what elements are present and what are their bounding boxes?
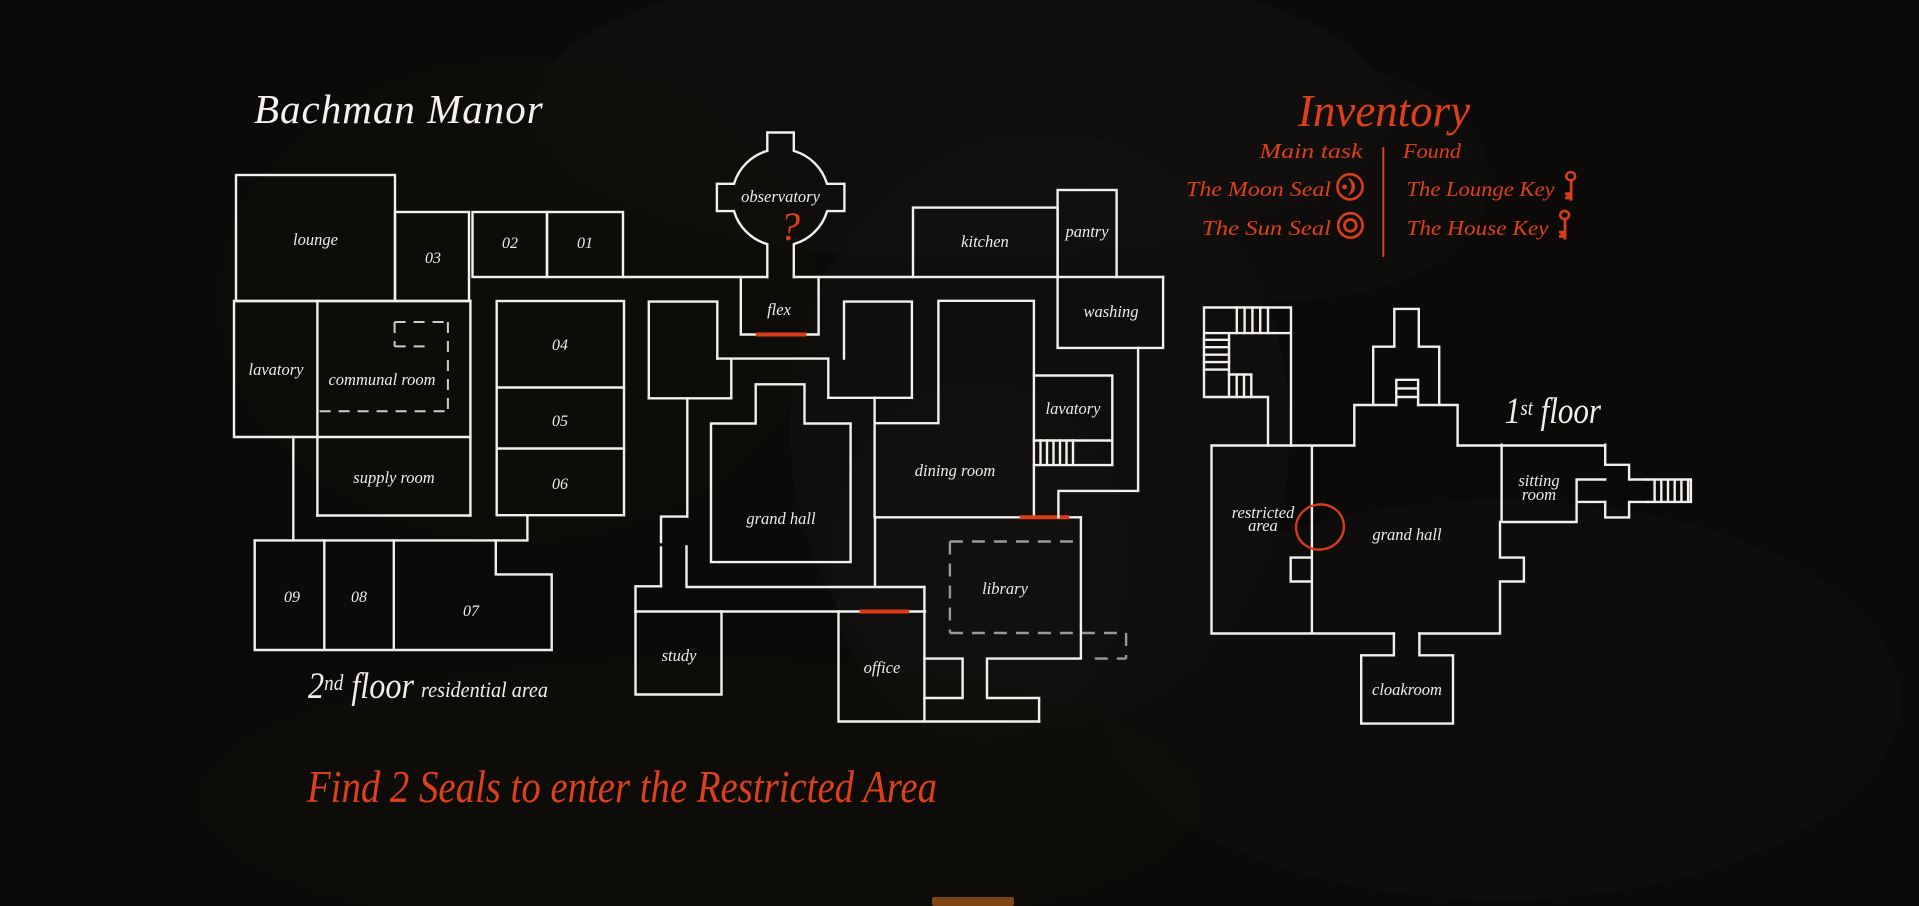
svg-text:03: 03 [425, 250, 441, 267]
svg-text:dining room: dining room [915, 461, 996, 480]
svg-text:lavatory: lavatory [1046, 399, 1102, 418]
svg-text:The Sun Seal: The Sun Seal [1202, 216, 1331, 240]
svg-text:06: 06 [552, 476, 568, 493]
svg-text:The Lounge Key: The Lounge Key [1407, 177, 1556, 201]
svg-text:lavatory: lavatory [249, 360, 305, 379]
svg-text:The House Key: The House Key [1407, 216, 1550, 240]
svg-text:01: 01 [577, 235, 593, 252]
svg-text:04: 04 [552, 337, 568, 354]
svg-text:office: office [864, 658, 901, 677]
svg-text:residential area: residential area [421, 677, 548, 702]
svg-text:?: ? [780, 204, 800, 249]
svg-text:area: area [1248, 516, 1278, 535]
svg-text:grand hall: grand hall [746, 509, 816, 528]
svg-text:library: library [982, 579, 1029, 598]
svg-text:09: 09 [284, 589, 300, 606]
svg-text:grand hall: grand hall [1372, 525, 1442, 544]
svg-text:cloakroom: cloakroom [1372, 680, 1442, 699]
svg-text:supply room: supply room [353, 468, 435, 487]
svg-text:The Moon Seal: The Moon Seal [1186, 177, 1331, 201]
svg-text:study: study [662, 646, 698, 665]
svg-text:Find 2 Seals to enter the Rest: Find 2 Seals to enter the Restricted Are… [306, 762, 937, 812]
svg-text:kitchen: kitchen [961, 232, 1009, 251]
svg-text:05: 05 [552, 413, 568, 430]
svg-text:washing: washing [1083, 302, 1138, 321]
svg-text:Inventory: Inventory [1297, 85, 1471, 136]
svg-text:Bachman Manor: Bachman Manor [254, 86, 544, 132]
svg-text:Main task: Main task [1258, 139, 1363, 163]
svg-text:room: room [1522, 485, 1556, 504]
svg-text:2nd floor: 2nd floor [308, 666, 415, 707]
svg-text:08: 08 [351, 589, 367, 606]
svg-text:pantry: pantry [1064, 222, 1109, 241]
svg-text:07: 07 [463, 603, 480, 620]
svg-text:lounge: lounge [293, 230, 338, 249]
svg-text:Found: Found [1402, 139, 1462, 163]
svg-text:02: 02 [502, 235, 518, 252]
svg-text:1st floor: 1st floor [1505, 391, 1601, 432]
svg-text:flex: flex [767, 300, 791, 319]
svg-text:communal room: communal room [328, 370, 435, 389]
